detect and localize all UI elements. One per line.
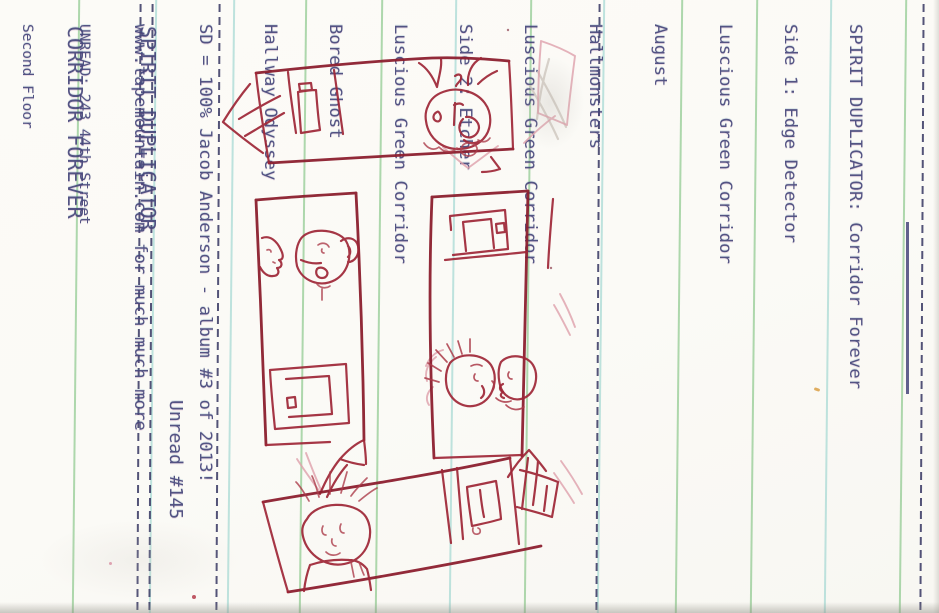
album-title-underline	[906, 222, 909, 394]
track-line: Side 1: Edge Detector	[777, 24, 802, 610]
track-line: Luscious Green Corridor	[712, 24, 737, 610]
title-album: Corridor Forever	[845, 222, 865, 389]
pencil-smudges	[530, 59, 566, 139]
fold-line	[919, 4, 924, 610]
door-top-corridor	[298, 83, 320, 133]
drawing-top-corridor	[223, 58, 513, 172]
album-title-line: SPIRIT DUPLICATOR: Corridor Forever	[842, 24, 867, 610]
scanned-jcard-page: UNREAD: 243 44th Street Second Floor Pit…	[0, 0, 939, 613]
drawing-right-corridor	[425, 191, 553, 458]
drawing-left-corridor	[256, 193, 366, 497]
drawing-bottom-corridor	[263, 450, 558, 592]
track-line: www.tapemountain.com for much much more	[127, 24, 152, 610]
spine-album: CORRIDOR FOREVER	[62, 26, 87, 266]
ink-speck	[109, 562, 112, 565]
ink-speck	[192, 595, 196, 599]
ghost-top	[419, 58, 497, 156]
tracklist-panel: SPIRIT DUPLICATOR: Corridor Forever Side…	[607, 24, 907, 610]
scan-edge-shadow-bottom	[0, 602, 939, 613]
door-right-corridor	[450, 210, 508, 255]
title-artist: SPIRIT DUPLICATOR:	[845, 24, 865, 222]
arrow-connector-tip	[482, 157, 500, 172]
track-line: SD = 100% Jacob Anderson - album #3 of 2…	[192, 24, 217, 610]
door-bottom-corridor	[467, 481, 501, 534]
scan-edge-shadow-right	[933, 0, 939, 613]
cover-drawing	[215, 25, 595, 610]
door-left-corridor	[270, 364, 349, 429]
track-line: August	[647, 24, 672, 610]
ghost-profile-pair	[260, 231, 358, 300]
arrow-left-icon	[223, 84, 284, 153]
